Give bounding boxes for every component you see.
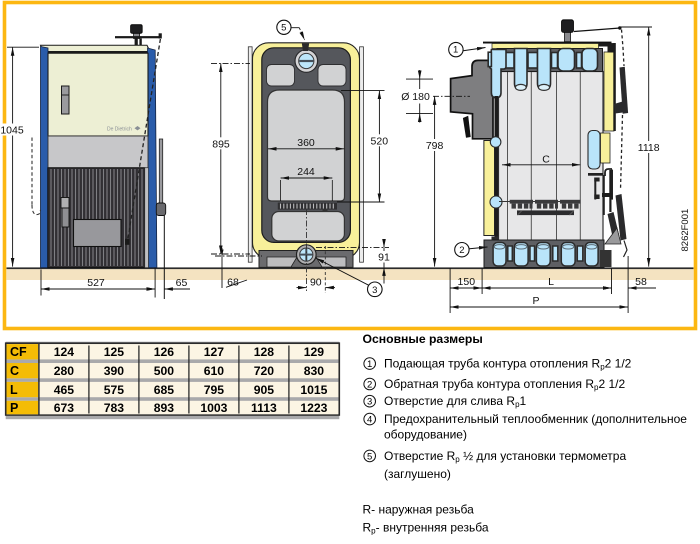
svg-text:280: 280 — [54, 364, 75, 378]
svg-text:1118: 1118 — [638, 142, 660, 154]
svg-text:De Dietrich: De Dietrich — [107, 127, 132, 133]
svg-text:360: 360 — [297, 137, 315, 149]
svg-text:895: 895 — [212, 138, 230, 150]
svg-text:3: 3 — [367, 397, 372, 408]
svg-text:244: 244 — [297, 166, 315, 178]
svg-text:127: 127 — [204, 345, 225, 359]
svg-text:CF: CF — [10, 345, 27, 359]
svg-text:783: 783 — [104, 401, 125, 415]
svg-text:4: 4 — [367, 415, 372, 426]
svg-text:520: 520 — [371, 135, 389, 147]
svg-text:L: L — [10, 383, 18, 397]
svg-text:P: P — [532, 295, 539, 307]
svg-text:1113: 1113 — [251, 401, 277, 415]
svg-text:оборудование): оборудование) — [384, 427, 467, 441]
svg-text:L: L — [548, 276, 554, 288]
svg-text:527: 527 — [87, 277, 105, 289]
svg-text:1223: 1223 — [300, 401, 327, 415]
svg-text:2: 2 — [367, 379, 372, 390]
svg-text:830: 830 — [304, 364, 325, 378]
svg-text:91: 91 — [378, 252, 390, 264]
svg-text:65: 65 — [176, 277, 188, 289]
svg-text:795: 795 — [204, 383, 225, 397]
svg-text:673: 673 — [54, 401, 75, 415]
svg-text:5: 5 — [367, 451, 372, 462]
svg-text:390: 390 — [104, 364, 125, 378]
svg-text:58: 58 — [635, 276, 647, 288]
svg-text:905: 905 — [254, 383, 275, 397]
svg-text:1003: 1003 — [200, 401, 227, 415]
svg-text:1: 1 — [367, 359, 372, 370]
svg-text:Отверстие для слива Rp1: Отверстие для слива Rp1 — [384, 394, 527, 409]
svg-text:1045: 1045 — [0, 125, 24, 137]
svg-text:Подающая труба контура отоплен: Подающая труба контура отопления Rp2 1/2 — [384, 357, 632, 372]
svg-text:C: C — [10, 364, 19, 378]
svg-text:1: 1 — [453, 45, 458, 56]
svg-text:3: 3 — [372, 285, 377, 296]
svg-text:1015: 1015 — [300, 383, 327, 397]
svg-text:C: C — [542, 154, 550, 166]
svg-text:893: 893 — [154, 401, 175, 415]
svg-text:5: 5 — [281, 22, 286, 33]
svg-text:Ø 180: Ø 180 — [401, 91, 430, 103]
svg-text:(заглушено): (заглушено) — [384, 467, 451, 481]
svg-text:Rp- внутренняя резьба: Rp- внутренняя резьба — [363, 521, 489, 536]
svg-text:P: P — [10, 401, 18, 415]
svg-text:129: 129 — [304, 345, 325, 359]
svg-text:685: 685 — [154, 383, 175, 397]
svg-text:Отверстие Rp ½ для установки т: Отверстие Rp ½ для установки термометра — [384, 449, 626, 464]
svg-text:124: 124 — [54, 345, 75, 359]
svg-text:Основные размеры: Основные размеры — [363, 332, 483, 346]
svg-text:150: 150 — [458, 276, 476, 288]
svg-text:720: 720 — [254, 364, 275, 378]
svg-text:125: 125 — [104, 345, 125, 359]
svg-text:R- наружная резьба: R- наружная резьба — [363, 503, 475, 517]
svg-text:Обратная труба контура отоплен: Обратная труба контура отопления Rp2 1/2 — [384, 377, 625, 392]
svg-text:798: 798 — [426, 140, 444, 152]
svg-text:128: 128 — [254, 345, 275, 359]
svg-text:126: 126 — [154, 345, 175, 359]
svg-text:575: 575 — [104, 383, 125, 397]
svg-text:90: 90 — [310, 276, 322, 288]
svg-text:Предохранительный теплообменни: Предохранительный теплообменник (дополни… — [384, 412, 687, 426]
svg-text:465: 465 — [54, 383, 75, 397]
svg-text:610: 610 — [204, 364, 225, 378]
svg-text:500: 500 — [154, 364, 175, 378]
svg-text:8262F001: 8262F001 — [680, 209, 691, 252]
svg-text:2: 2 — [459, 245, 464, 256]
